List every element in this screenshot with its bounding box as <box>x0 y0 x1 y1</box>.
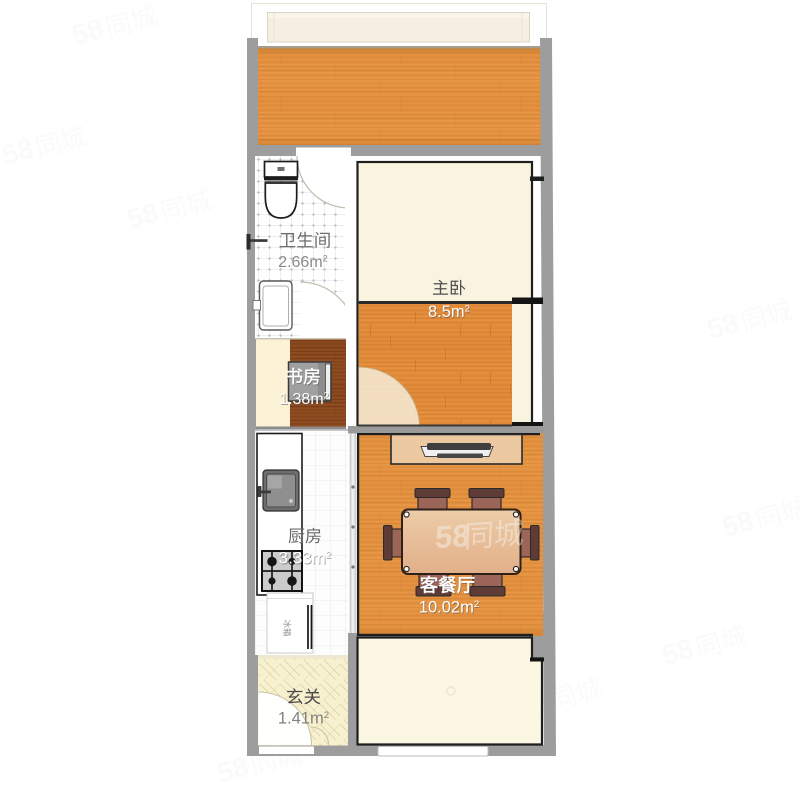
svg-text:1.38m2: 1.38m2 <box>279 391 329 408</box>
svg-text:3.33m2: 3.33m2 <box>279 549 332 568</box>
svg-text:1.41m2: 1.41m2 <box>278 710 329 728</box>
svg-text:2.66m2: 2.66m2 <box>278 254 328 271</box>
svg-text:10.02m2: 10.02m2 <box>419 599 479 617</box>
svg-text:58: 58 <box>435 518 471 555</box>
svg-text:8.5m2: 8.5m2 <box>428 303 470 321</box>
